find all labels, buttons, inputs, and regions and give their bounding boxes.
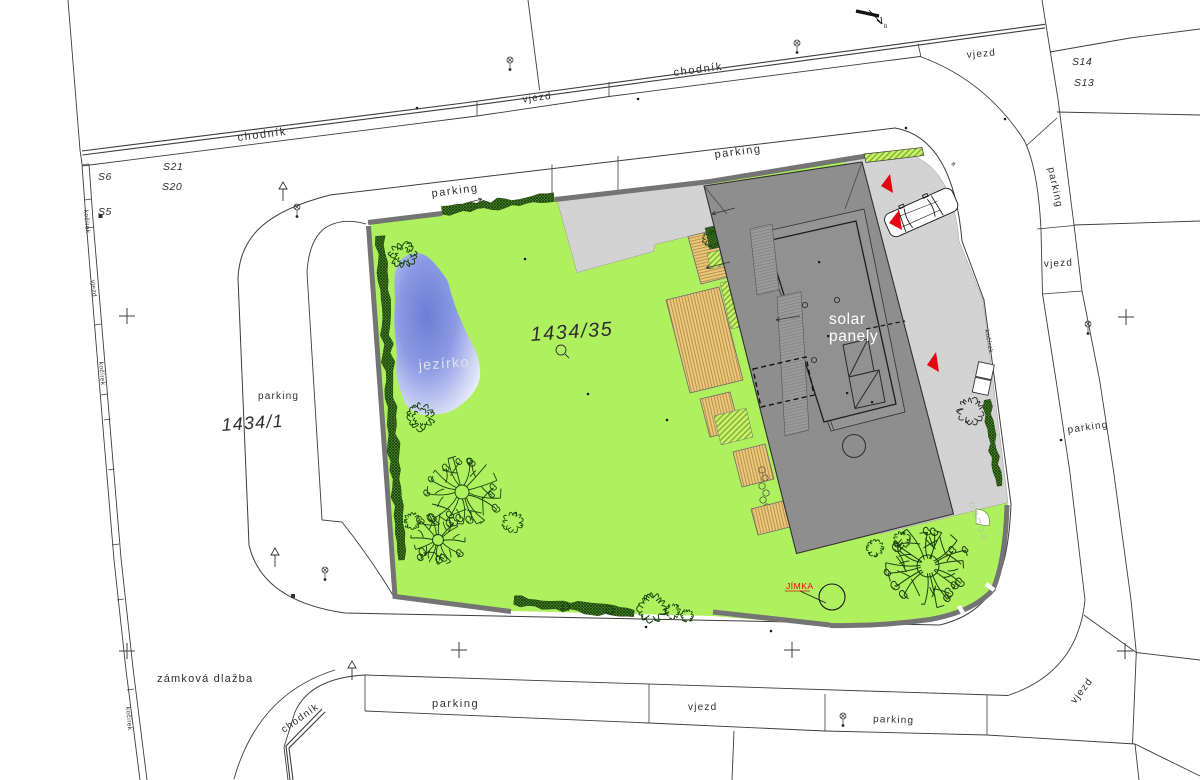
svg-text:S13: S13 <box>1074 77 1094 89</box>
svg-text:vjezd: vjezd <box>688 702 717 713</box>
svg-text:JÍMKA: JÍMKA <box>786 581 814 591</box>
svg-text:S14: S14 <box>1072 56 1092 68</box>
svg-text:panely: panely <box>829 328 878 345</box>
svg-text:zámková dlažba: zámková dlažba <box>157 673 253 685</box>
svg-text:vjezd: vjezd <box>1044 257 1074 270</box>
svg-text:vjezd: vjezd <box>89 280 97 298</box>
svg-text:parking: parking <box>258 391 299 402</box>
svg-text:parking: parking <box>432 698 479 710</box>
svg-text:S5: S5 <box>98 206 112 218</box>
svg-text:S21: S21 <box>163 161 183 173</box>
svg-text:solar: solar <box>829 311 866 328</box>
svg-text:parking: parking <box>873 714 915 726</box>
svg-text:S6: S6 <box>98 171 112 183</box>
svg-text:S20: S20 <box>162 181 182 193</box>
